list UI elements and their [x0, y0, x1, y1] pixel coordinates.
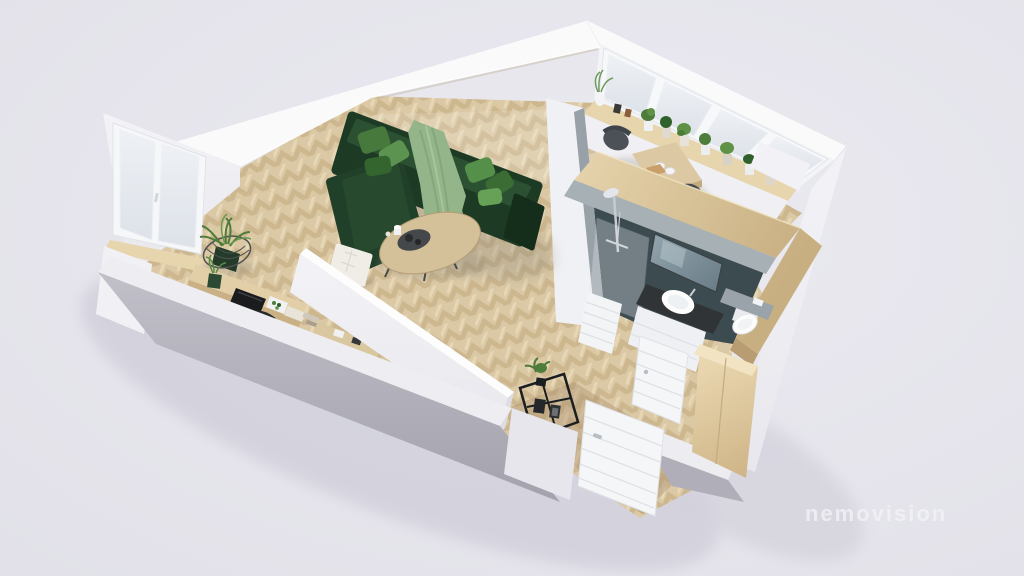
door-handle [644, 370, 648, 374]
watermark: nemovision [805, 501, 947, 526]
floorplan-3d-render: nemovision [0, 0, 1024, 576]
vase [595, 92, 605, 106]
render-stage: nemovision [0, 0, 1024, 576]
